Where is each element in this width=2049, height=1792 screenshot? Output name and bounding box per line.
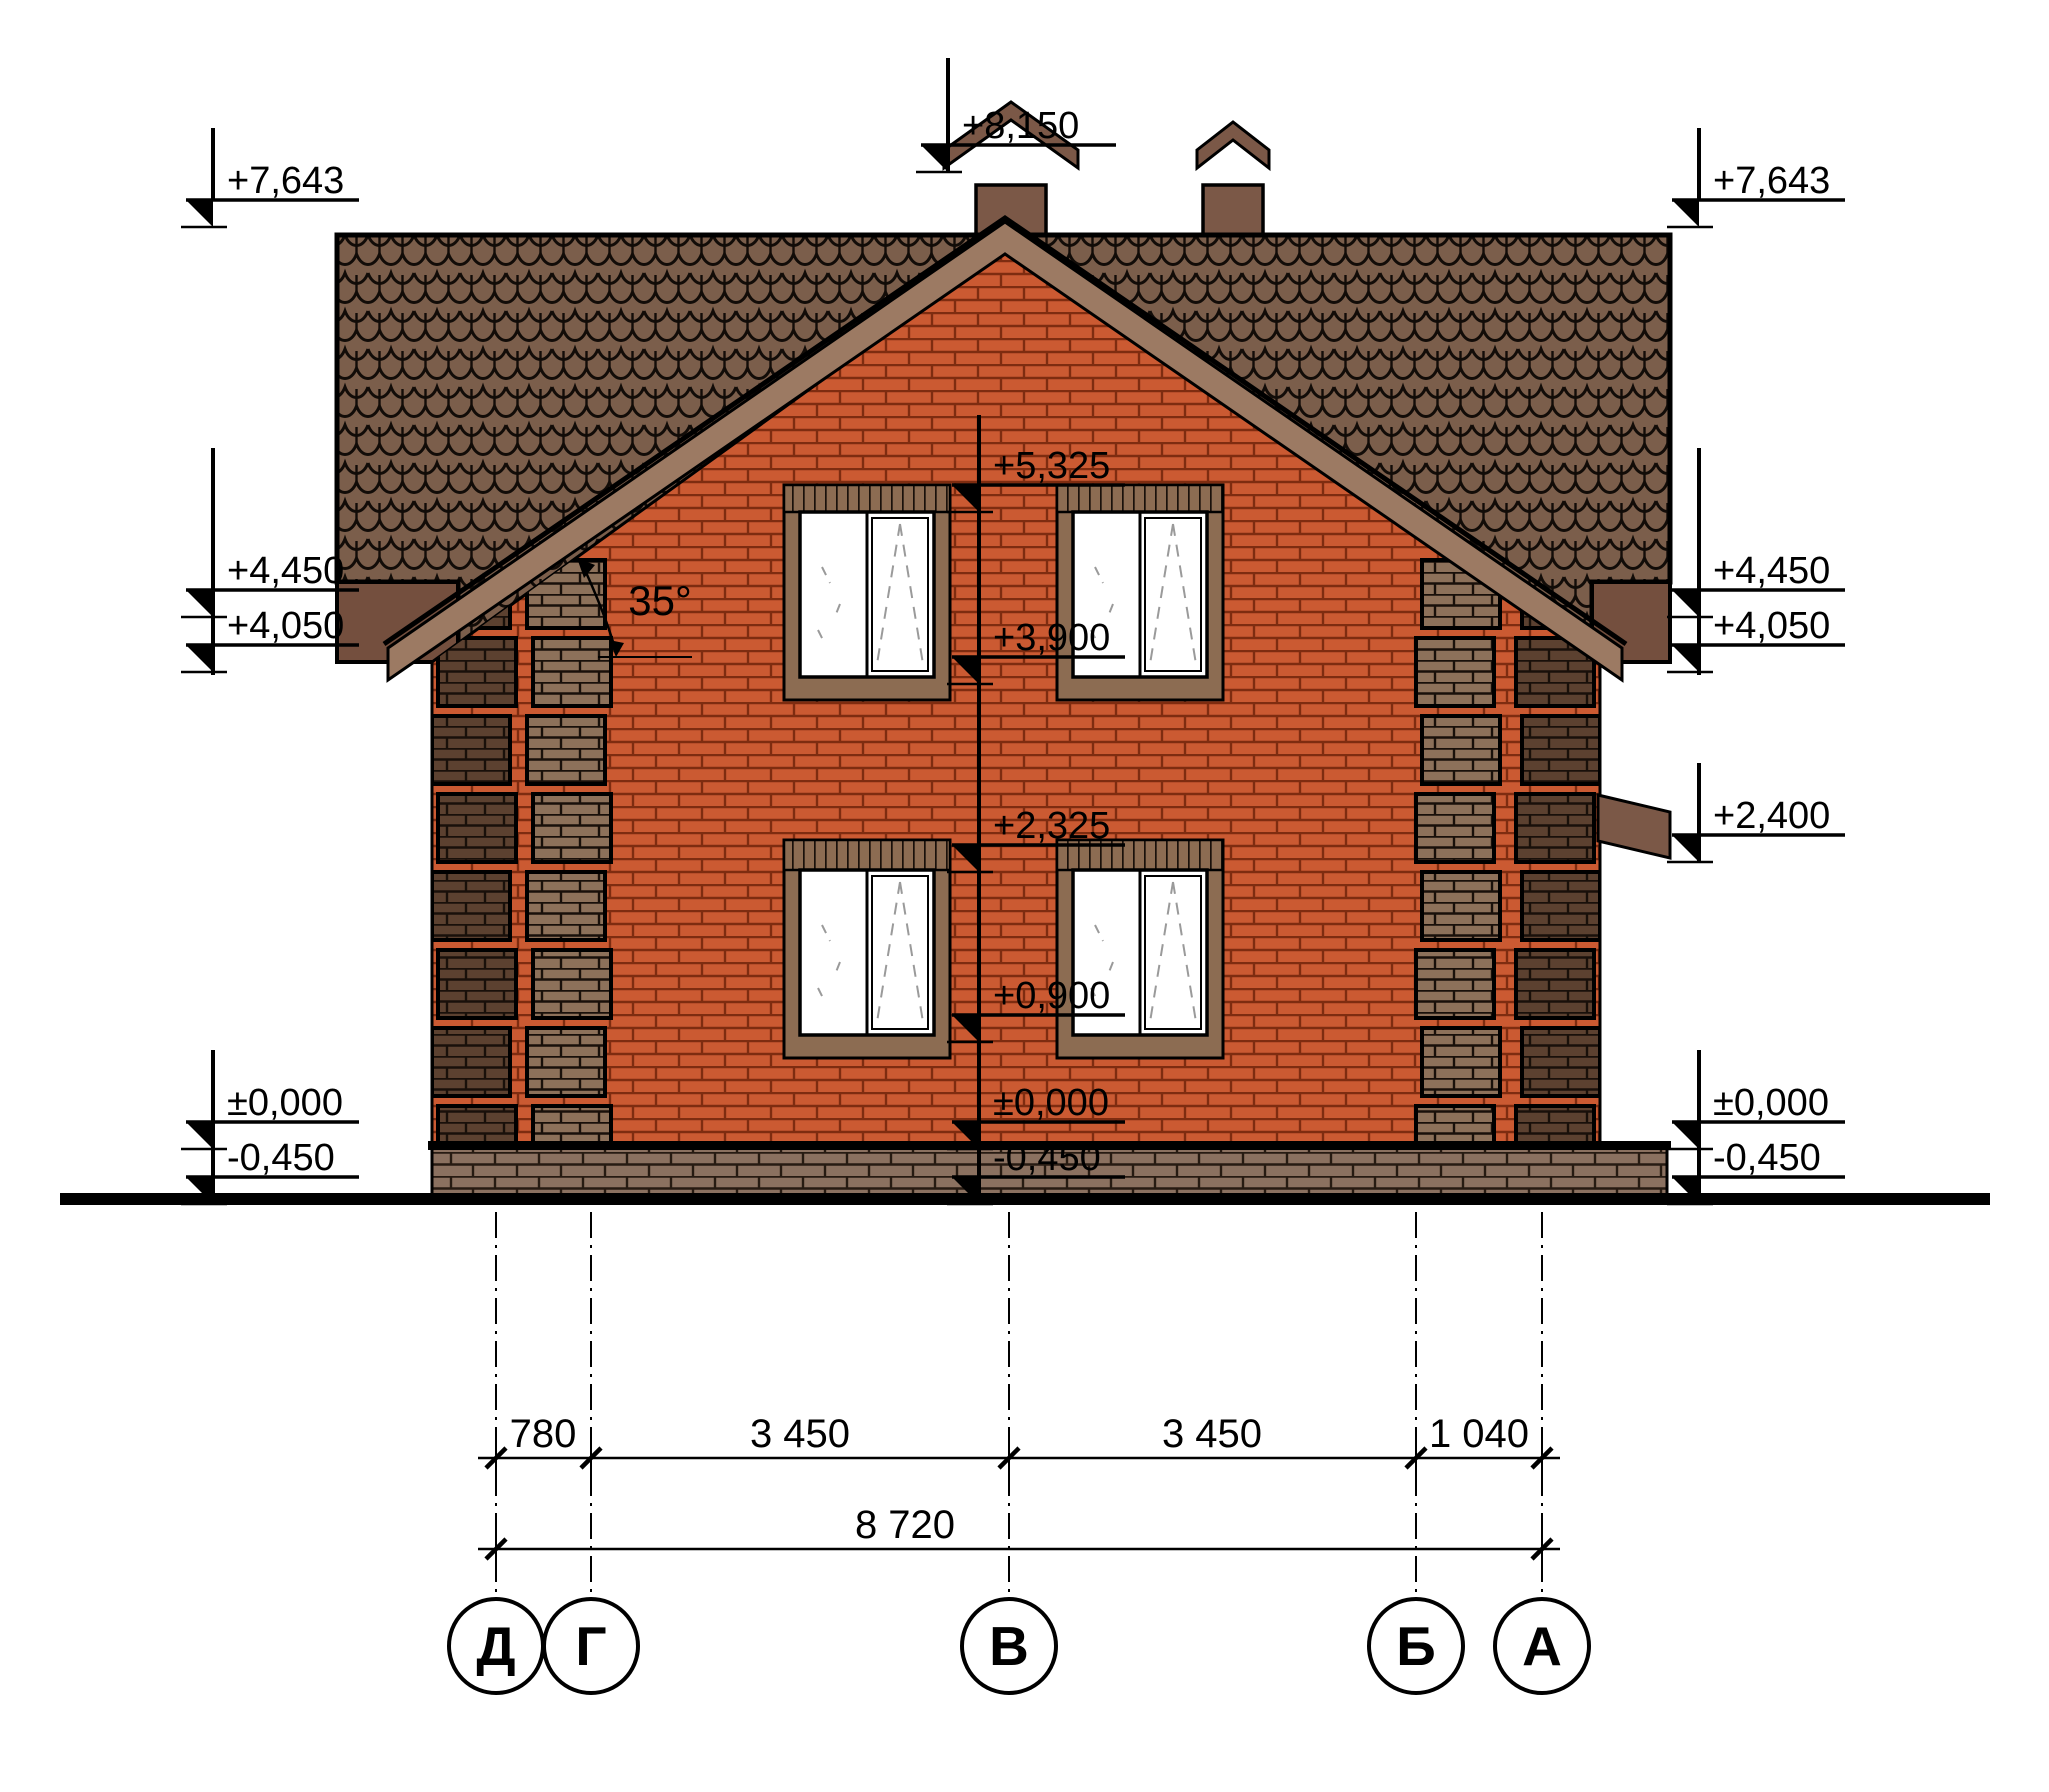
elevation-marker-label: +8,150 [962, 105, 1079, 147]
elevation-marker-label: ±0,000 [1713, 1082, 1829, 1124]
quoin-block [1422, 1028, 1500, 1096]
window-lintel [784, 840, 950, 870]
elevation-marker-arrow [186, 645, 213, 672]
elevation-marker-label: -0,450 [993, 1137, 1101, 1179]
quoin-block [533, 950, 611, 1018]
elevation-marker-arrow [186, 200, 213, 227]
quoin-block [1516, 794, 1594, 862]
elevation-marker-label: ±0,000 [993, 1082, 1109, 1124]
elevation-marker-label: +4,450 [1713, 550, 1830, 592]
dimension-label: 780 [510, 1412, 577, 1456]
elevation-marker-arrow [186, 1122, 213, 1149]
dimension-label: 3 450 [1162, 1412, 1262, 1456]
elevation-marker-label: +5,325 [993, 445, 1110, 487]
elevation-marker-label: +2,325 [993, 805, 1110, 847]
quoin-block [527, 716, 605, 784]
quoin-block [527, 872, 605, 940]
roof-angle-label: 35° [628, 577, 692, 624]
elevation-marker-arrow [1672, 1122, 1699, 1149]
axis-label: Г [575, 1615, 606, 1677]
elevation-marker-arrow [1672, 200, 1699, 227]
elevation-marker-label: -0,450 [227, 1137, 335, 1179]
quoin-block [432, 1028, 510, 1096]
dimension-label: 3 450 [750, 1412, 850, 1456]
dimension-label: 8 720 [855, 1503, 955, 1547]
quoin-block [1422, 716, 1500, 784]
quoin-block [1522, 1028, 1600, 1096]
window-lintel [784, 485, 950, 512]
quoin-block [432, 716, 510, 784]
quoin-block [1416, 638, 1494, 706]
axis-label: А [1522, 1615, 1562, 1677]
elevation-marker-label: +2,400 [1713, 795, 1830, 837]
elevation-marker-label: -0,450 [1713, 1137, 1821, 1179]
chimney-cap [1197, 122, 1269, 168]
quoin-block [438, 794, 516, 862]
elevation-marker-arrow [1672, 835, 1699, 862]
elevation-marker-arrow [186, 590, 213, 617]
elevation-marker-arrow [1672, 590, 1699, 617]
elevation-marker-label: ±0,000 [227, 1082, 343, 1124]
quoin-block [533, 638, 611, 706]
elevation-marker-label: +4,450 [227, 550, 344, 592]
elevation-svg: 35°+7,643+4,450+4,050±0,000-0,450+7,643+… [0, 0, 2049, 1792]
elevation-marker-label: +7,643 [227, 160, 344, 202]
elevation-marker-label: +4,050 [1713, 605, 1830, 647]
quoin-block [1416, 950, 1494, 1018]
quoin-block [527, 1028, 605, 1096]
elevation-drawing: 35°+7,643+4,450+4,050±0,000-0,450+7,643+… [0, 0, 2049, 1792]
elevation-marker-arrow [921, 145, 948, 172]
elevation-marker-arrow [1672, 645, 1699, 672]
canopy [1598, 795, 1670, 858]
window-lintel [1057, 485, 1223, 512]
quoin-block [1516, 950, 1594, 1018]
quoin-block [1522, 872, 1600, 940]
quoin-block [1522, 716, 1600, 784]
quoin-block [1416, 794, 1494, 862]
quoin-block [1422, 872, 1500, 940]
elevation-marker-label: +7,643 [1713, 160, 1830, 202]
axis-label: В [989, 1615, 1029, 1677]
quoin-block [533, 794, 611, 862]
quoin-block [432, 872, 510, 940]
axis-label: Д [476, 1615, 515, 1677]
elevation-marker-label: +0,900 [993, 975, 1110, 1017]
elevation-marker-label: +3,900 [993, 617, 1110, 659]
elevation-marker-label: +4,050 [227, 605, 344, 647]
axis-label: Б [1396, 1615, 1436, 1677]
dimension-label: 1 040 [1429, 1412, 1529, 1456]
quoin-block [438, 950, 516, 1018]
chimney-body [1203, 185, 1263, 240]
